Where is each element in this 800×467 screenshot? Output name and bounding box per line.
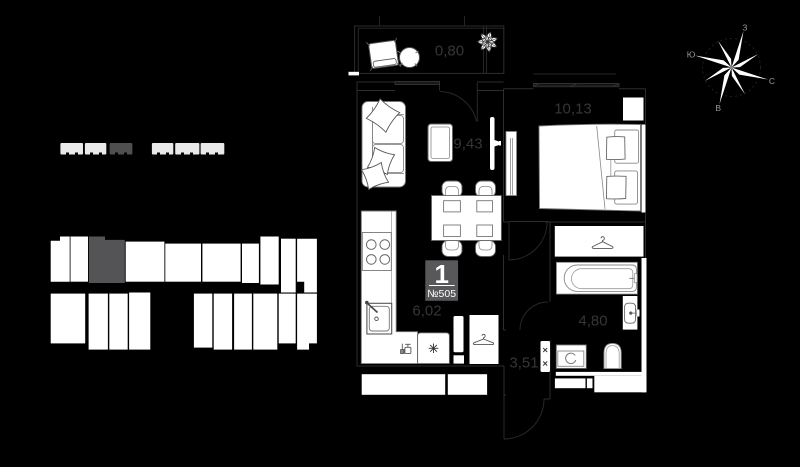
svg-text:10,13: 10,13	[554, 101, 592, 118]
svg-text:4,80: 4,80	[578, 313, 607, 330]
svg-text:0,80: 0,80	[435, 43, 464, 60]
svg-text:6,02: 6,02	[412, 303, 441, 320]
svg-text:В: В	[715, 103, 721, 113]
svg-text:З: З	[742, 22, 747, 32]
svg-text:№505: №505	[427, 288, 456, 300]
svg-text:Ю: Ю	[687, 49, 696, 59]
svg-text:3,51: 3,51	[509, 355, 538, 372]
svg-text:1: 1	[434, 259, 448, 289]
svg-text:С: С	[769, 76, 775, 86]
svg-text:9,43: 9,43	[453, 136, 482, 153]
